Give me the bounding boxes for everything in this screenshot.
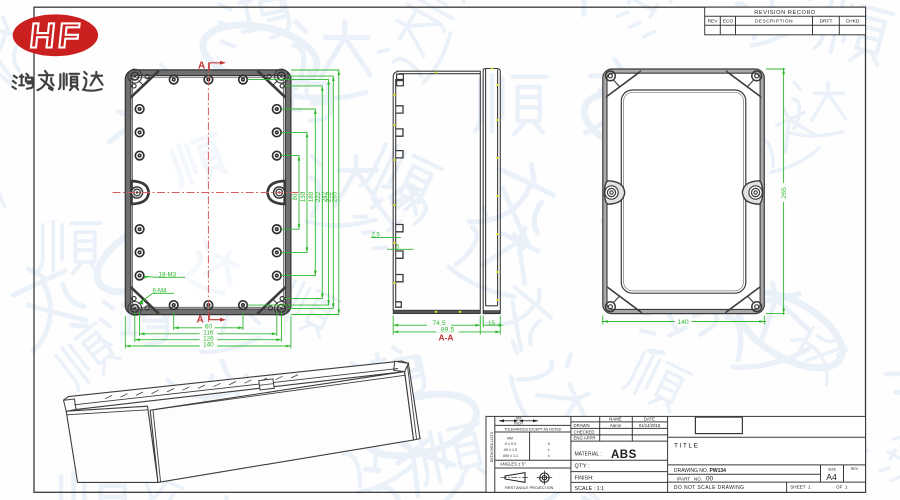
svg-text:CHECKED: CHECKED xyxy=(574,429,595,434)
svg-text:ECO: ECO xyxy=(723,18,734,24)
svg-text:X: X xyxy=(548,442,551,446)
svg-text:DRAWING NO. PW134: DRAWING NO. PW134 xyxy=(674,468,726,474)
svg-text:±: ± xyxy=(548,454,550,458)
svg-text:A-A: A-A xyxy=(439,333,454,343)
svg-text:/PART NO. 00: /PART NO. 00 xyxy=(677,475,713,482)
svg-text:TOLERANCES EXCEPT AS NOTED: TOLERANCES EXCEPT AS NOTED xyxy=(504,428,562,432)
svg-text:™: ™ xyxy=(86,19,93,26)
svg-text:DRFT: DRFT xyxy=(820,18,833,24)
svg-text:MATERIAL :: MATERIAL : xyxy=(575,451,602,457)
svg-text:TITLE: TITLE xyxy=(674,442,699,449)
svg-text:265: 265 xyxy=(781,187,788,199)
svg-text:REV: REV xyxy=(708,18,719,24)
svg-text:.00 ± 1.0: .00 ± 1.0 xyxy=(503,448,517,452)
svg-text:130: 130 xyxy=(300,191,307,202)
svg-text:140: 140 xyxy=(677,319,689,326)
svg-text:INCH: INCH xyxy=(514,421,523,425)
svg-text:A4: A4 xyxy=(826,472,837,482)
svg-text:NAME: NAME xyxy=(609,417,622,422)
svg-text:2.5: 2.5 xyxy=(372,233,381,239)
svg-text:SCALE : 1:1: SCALE : 1:1 xyxy=(575,486,605,492)
svg-text:DRAWN: DRAWN xyxy=(574,423,590,428)
svg-text:OF 1: OF 1 xyxy=(836,485,848,490)
svg-text:01/14/2015: 01/14/2015 xyxy=(639,423,661,428)
svg-text:REVISION RECORD: REVISION RECORD xyxy=(754,10,816,16)
svg-text:ANGLES ± 5°: ANGLES ± 5° xyxy=(500,462,526,467)
svg-text:CHKD: CHKD xyxy=(846,18,860,24)
svg-text:FIRST ANGLE PROJECTION: FIRST ANGLE PROJECTION xyxy=(505,486,554,490)
svg-text:140: 140 xyxy=(203,342,214,349)
svg-text:HF: HF xyxy=(28,17,85,56)
svg-text:DETACHED LISTS: DETACHED LISTS xyxy=(490,431,494,462)
svg-text:FINISH:: FINISH: xyxy=(575,476,594,482)
svg-text:180: 180 xyxy=(308,191,315,202)
svg-text:.0 ± 0.3: .0 ± 0.3 xyxy=(504,442,516,446)
svg-text:265: 265 xyxy=(332,191,339,202)
svg-text:±: ± xyxy=(548,448,550,452)
svg-text:MM: MM xyxy=(516,416,522,420)
svg-text:DO NOT SCALE DRAWING: DO NOT SCALE DRAWING xyxy=(674,485,745,491)
svg-text:.000 ± 1.1: .000 ± 1.1 xyxy=(502,454,518,458)
svg-text:Aaron: Aaron xyxy=(610,423,622,428)
svg-text:QT'Y :: QT'Y : xyxy=(575,464,590,470)
svg-text:ENG APPR: ENG APPR xyxy=(574,436,596,441)
svg-text:SHEET 1: SHEET 1 xyxy=(790,485,811,490)
svg-text:MM: MM xyxy=(507,437,513,441)
svg-text:A: A xyxy=(198,61,205,72)
svg-text:DESCRIPTION: DESCRIPTION xyxy=(755,18,793,24)
svg-text:SIZE: SIZE xyxy=(828,467,837,471)
svg-text:REV: REV xyxy=(851,467,859,471)
svg-text:80: 80 xyxy=(292,193,299,200)
svg-text:ABS: ABS xyxy=(611,449,637,461)
svg-text:DATE: DATE xyxy=(644,417,655,422)
svg-text:15: 15 xyxy=(488,320,496,327)
